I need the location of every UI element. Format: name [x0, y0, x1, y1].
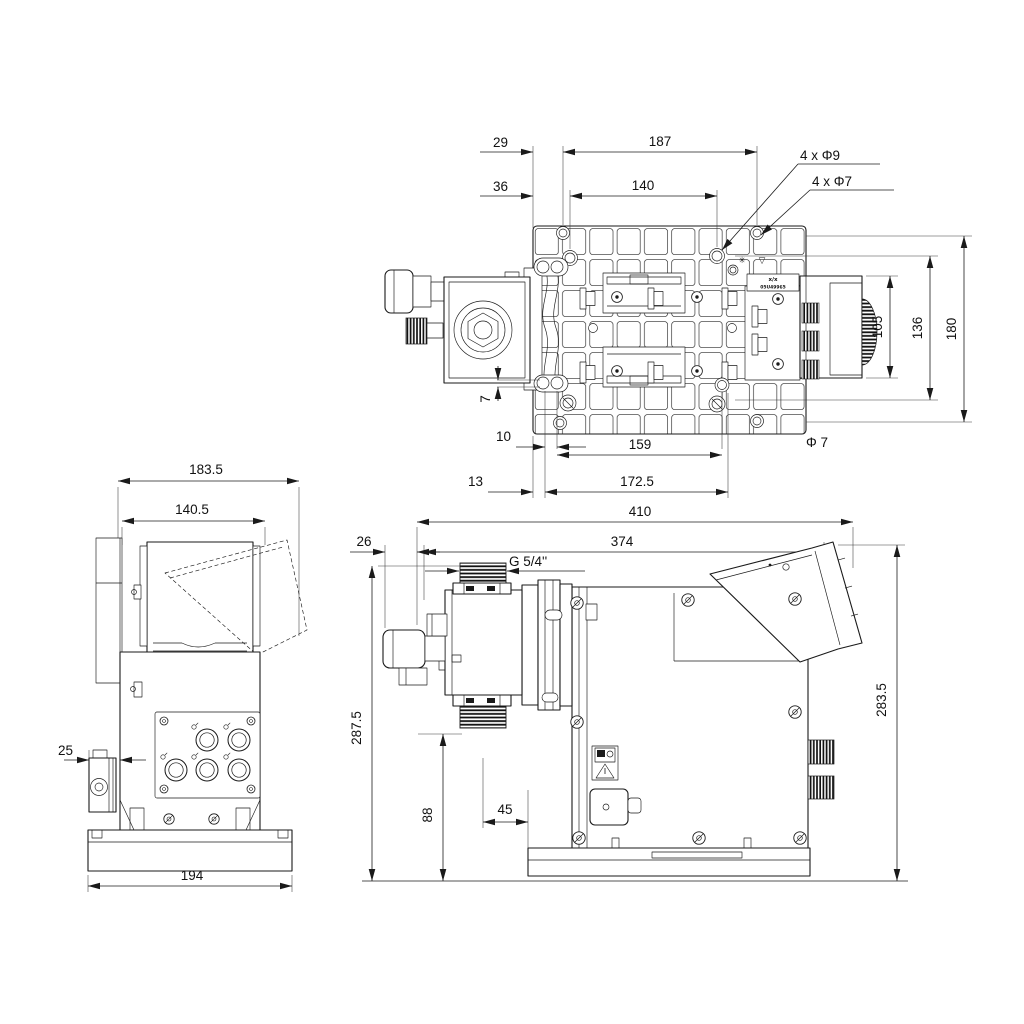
- dim-140-5: 140.5: [175, 502, 209, 517]
- connector-plate: [155, 712, 260, 798]
- cable-gland-side: [383, 614, 447, 685]
- suction-thread: [460, 706, 506, 728]
- dim-dia7: Φ 7: [806, 435, 828, 450]
- back-view: 183.5 140.5: [58, 462, 307, 892]
- callout-4xd9: 4 x Φ9: [800, 148, 840, 163]
- dim-36: 36: [493, 179, 508, 194]
- dim-45: 45: [497, 802, 512, 817]
- connector-socket: [228, 729, 250, 751]
- dim-187: 187: [649, 134, 672, 149]
- nameplate-line2: 05U49965: [760, 285, 786, 291]
- side-view: 410 374 26 G 5/4'': [349, 504, 908, 881]
- dim-283-5: 283.5: [874, 683, 889, 717]
- side-bracket: [89, 750, 116, 812]
- dosing-head-top: [444, 272, 530, 383]
- gear-icon: ✳: [738, 256, 745, 266]
- dim-13: 13: [468, 474, 483, 489]
- recycle-icon: ▽: [759, 256, 766, 266]
- side-knobs: [808, 740, 834, 799]
- discharge-thread: [460, 563, 506, 583]
- dim-172-5: 172.5: [620, 474, 654, 489]
- dim-88: 88: [420, 807, 435, 822]
- connector-socket: [196, 729, 218, 751]
- dim-183-5: 183.5: [189, 462, 223, 477]
- dim-10: 10: [496, 429, 511, 444]
- dim-140: 140: [632, 178, 655, 193]
- control-cube-top: [800, 276, 877, 379]
- warning-label: [592, 746, 618, 780]
- control-interface-section-top: x/x 05U49965: [745, 274, 800, 380]
- dim-29: 29: [493, 135, 508, 150]
- base-back: [88, 830, 292, 871]
- dim-25: 25: [58, 743, 73, 758]
- callout-4xd7: 4 x Φ7: [812, 174, 852, 189]
- dim-410: 410: [629, 504, 652, 519]
- dosing-pump-dimension-drawing: x/x 05U49965 ✳ ▽ 29: [0, 0, 1024, 1024]
- dim-105: 105: [870, 316, 885, 339]
- dim-thread: G 5/4'': [509, 554, 547, 569]
- connector-socket: [165, 759, 187, 781]
- dim-7: 7: [478, 395, 493, 403]
- dim-26: 26: [356, 534, 371, 549]
- cable-gland-top: [385, 270, 444, 344]
- suction-valve-nut: [453, 695, 511, 706]
- dim-136: 136: [910, 317, 925, 340]
- dim-374: 374: [611, 534, 634, 549]
- technical-drawing-canvas: x/x 05U49965 ✳ ▽ 29: [0, 0, 1024, 1024]
- discharge-valve-nut: [453, 583, 511, 594]
- dim-194: 194: [181, 868, 204, 883]
- connector-socket: [228, 759, 250, 781]
- connector-socket: [196, 759, 218, 781]
- dim-287-5: 287.5: [349, 711, 364, 745]
- top-view: x/x 05U49965 ✳ ▽ 29: [385, 134, 972, 498]
- dim-180: 180: [944, 318, 959, 341]
- dim-159: 159: [629, 437, 652, 452]
- nameplate-line1: x/x: [768, 277, 778, 283]
